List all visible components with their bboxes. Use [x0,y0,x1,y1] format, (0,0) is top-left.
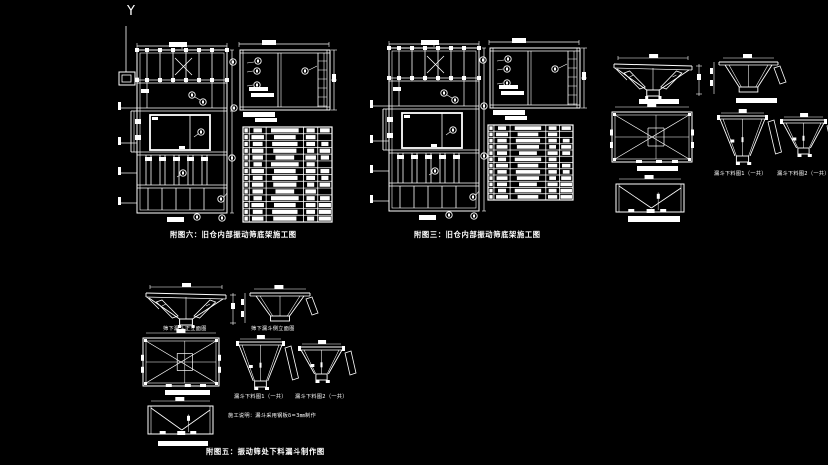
fig5-blank1-drawing [236,335,299,390]
hopperset-bottom-detail [616,175,684,213]
fig5-side-view-label: 筛下漏斗侧立面图 [251,324,295,332]
balloon-marker [441,90,447,96]
hopperset-bottom-title-blob [628,216,680,222]
balloon-marker [194,214,200,220]
fig5-blank1-label: 漏斗下料图1（一共） [234,392,287,400]
balloon-marker [452,97,458,103]
fig5-pattern-plan [141,329,221,387]
balloon-marker [504,66,510,72]
balloon-marker [255,58,261,64]
balloon-marker [480,57,486,63]
hopperset-front-title-blob [639,99,679,104]
hopperset-side-title-blob [736,98,777,103]
fig5-front-elevation [146,283,236,328]
balloon-marker [470,194,476,200]
fig5-note: 施工说明：漏斗采用钢板δ=3㎜制作 [228,411,316,419]
ucs-marker [119,26,139,85]
fig5-caption: 附图五：振动筛处下料漏斗制作图 [206,446,325,457]
fig5-blank2-drawing [298,340,356,383]
hopperset-blank1-label: 漏斗下料图1（一共） [714,169,767,177]
balloon-marker [189,92,195,98]
balloon-marker [198,129,204,135]
fig5-pattern-title-blob [165,390,210,395]
balloon-marker [200,99,206,105]
balloon-marker [450,127,456,133]
balloon-marker [218,196,224,202]
y-axis-label: Y [127,4,135,19]
balloon-marker [254,68,260,74]
balloon-marker [446,212,452,218]
fig6-caption: 附图六：旧仓内部振动筛底架施工图 [170,229,297,240]
fig3-parts-table [488,125,573,200]
fig5-side-elevation [241,285,318,323]
fig3-plan-view [370,40,487,220]
fig6-elevation-view [230,40,337,122]
hopperset-side-elevation [710,54,786,94]
hopperset-pattern-title-blob [637,166,678,171]
balloon-marker [219,215,225,221]
hopperset-front-elevation [614,54,702,99]
hopperset-blank2-label: 漏斗下料图2（一共） [777,169,828,177]
hopperset-blank1-drawing [717,109,782,165]
balloon-marker [505,56,511,62]
fig6-plan-view [118,42,235,222]
fig3-caption: 附图三：旧仓内部振动筛底架施工图 [414,229,541,240]
balloon-marker [552,66,558,72]
fig5-front-view-label: 筛下漏斗正立面图 [163,324,207,332]
balloon-marker [302,68,308,74]
fig5-bottom-detail [148,397,213,435]
fig6-parts-table [243,127,332,222]
balloon-marker [230,59,236,65]
fig5-blank2-label: 漏斗下料图2（一共） [295,392,348,400]
cad-workspace: Y 附图六：旧仓内部振动筛底架施工图 附图三：旧仓内部振动筛底架施工图 附图五：… [0,0,828,465]
balloon-marker [471,213,477,219]
balloon-marker [432,168,438,174]
hopperset-blank2-drawing [780,113,828,157]
balloon-marker [180,170,186,176]
fig3-elevation-view [480,38,587,120]
hopperset-pattern-plan [610,103,694,163]
fig5-bottom-title-blob [158,441,208,446]
